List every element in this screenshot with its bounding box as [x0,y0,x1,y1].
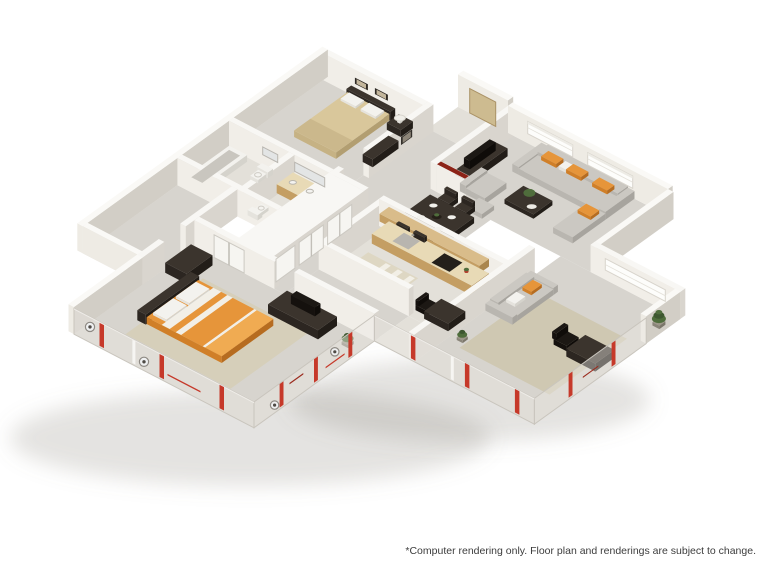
dining-plate [448,215,456,219]
dining-plate [435,227,443,231]
toilet-lid [255,173,262,177]
wall-den-north-side [681,288,686,319]
kitchen-vase-flowers [464,268,469,272]
vanity-sink [306,189,313,193]
red-stripe [569,372,573,398]
red-stripe [411,335,416,361]
red-stripe [220,385,225,411]
red-stripe [280,381,284,407]
red-stripe [100,322,105,348]
floor-plan-image: *Computer rendering only. Floor plan and… [0,0,764,573]
glass-bolt-inner [88,325,91,328]
glass-bolt-inner [333,350,336,353]
bed2-lamp-shade [394,115,405,121]
disclaimer-text: *Computer rendering only. Floor plan and… [405,545,756,557]
kitchen-faucet [411,234,414,236]
closet-bifold-seam [339,213,340,237]
red-stripe [465,363,470,389]
master-bifold-seam [228,242,230,266]
vanity-sink [289,181,296,185]
wall-master-west-front [69,304,75,334]
wall-ext-west-front [77,223,83,253]
wall-kitchen-south-side [409,286,414,317]
red-stripe [314,357,318,383]
glass-mullion [132,340,135,365]
red-stripe [612,341,616,367]
floor-plan-svg [0,0,764,573]
dining-plate [429,204,437,208]
toilet2-lid [258,206,264,210]
coffee-table-plant [523,189,535,197]
dining-centerpiece-plant [434,213,439,216]
wall-living-west-front [431,162,437,192]
coffee-table-dish [527,204,537,209]
glass-bolt-inner [142,360,145,363]
red-stripe [160,354,165,380]
red-stripe [515,389,520,415]
dining-plate [417,215,425,219]
den-plant [656,310,663,314]
closet-bifold-seam [311,233,312,257]
glass-bolt-inner [273,404,276,407]
glass-mullion [451,356,454,381]
red-stripe [348,332,352,358]
den-plant2 [459,330,465,334]
